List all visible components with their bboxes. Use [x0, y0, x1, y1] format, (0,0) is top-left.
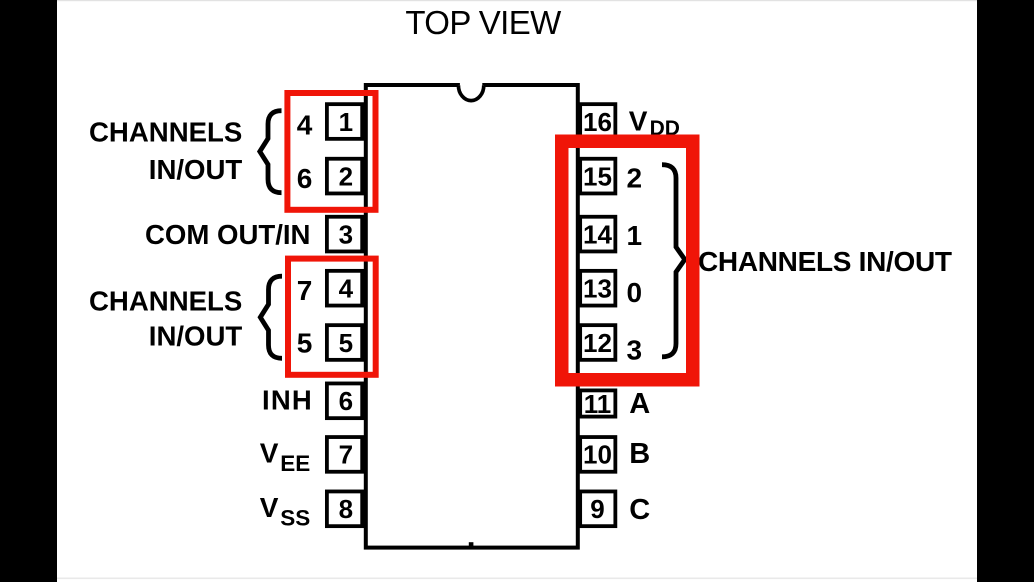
svg-text:V: V	[260, 438, 279, 469]
svg-text:10: 10	[583, 440, 612, 470]
svg-text:V: V	[260, 492, 279, 523]
svg-text:B: B	[629, 438, 650, 470]
svg-text:SS: SS	[280, 505, 310, 530]
svg-text:IN/OUT: IN/OUT	[149, 154, 243, 185]
svg-text:3: 3	[339, 219, 353, 249]
svg-text:7: 7	[339, 440, 353, 470]
svg-text:CHANNELS: CHANNELS	[89, 285, 242, 316]
svg-text:5: 5	[297, 328, 313, 359]
svg-text:COM OUT/IN: COM OUT/IN	[145, 219, 311, 250]
svg-text:11: 11	[584, 389, 612, 419]
svg-text:14: 14	[583, 219, 612, 249]
svg-text:8: 8	[339, 494, 353, 524]
svg-text:6: 6	[339, 386, 353, 416]
svg-text:5: 5	[339, 328, 353, 358]
svg-text:4: 4	[297, 110, 313, 141]
svg-text:TOP VIEW: TOP VIEW	[405, 4, 562, 41]
svg-text:0: 0	[627, 277, 643, 308]
svg-text:A: A	[629, 388, 650, 420]
svg-text:13: 13	[583, 274, 612, 304]
svg-text:7: 7	[297, 275, 313, 306]
svg-text:C: C	[629, 494, 650, 526]
svg-text:INH: INH	[262, 385, 313, 416]
svg-text:IN/OUT: IN/OUT	[149, 321, 243, 352]
svg-text:V: V	[629, 105, 648, 136]
svg-text:9: 9	[590, 494, 604, 524]
svg-text:16: 16	[583, 107, 612, 137]
svg-text:4: 4	[339, 274, 354, 304]
svg-text:CHANNELS: CHANNELS	[89, 117, 242, 148]
svg-text:3: 3	[627, 334, 643, 365]
svg-text:1: 1	[339, 107, 353, 137]
svg-text:CHANNELS IN/OUT: CHANNELS IN/OUT	[698, 246, 952, 277]
svg-text:2: 2	[627, 163, 643, 194]
svg-text:EE: EE	[280, 451, 310, 476]
svg-text:2: 2	[339, 161, 353, 191]
svg-text:6: 6	[297, 163, 313, 194]
svg-text:1: 1	[627, 220, 643, 251]
svg-text:15: 15	[583, 161, 612, 191]
svg-text:12: 12	[583, 328, 612, 358]
